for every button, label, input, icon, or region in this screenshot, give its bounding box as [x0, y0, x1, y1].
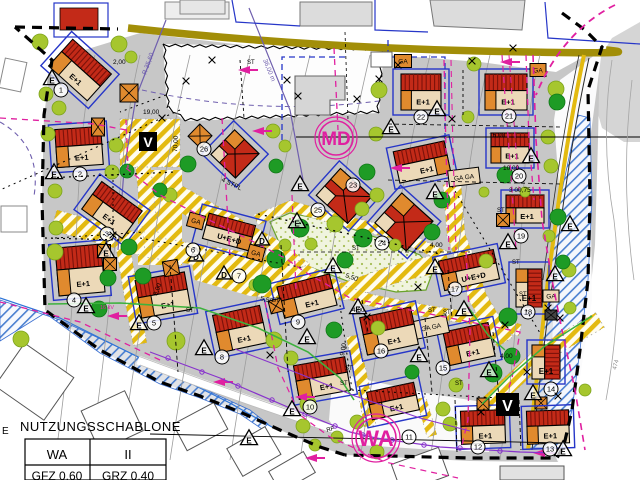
svg-text:26: 26	[200, 145, 208, 154]
svg-text:15: 15	[439, 364, 447, 373]
svg-text:21: 21	[505, 112, 513, 121]
svg-text:E: E	[294, 219, 300, 228]
svg-text:E+1: E+1	[543, 431, 557, 440]
svg-text:16,00: 16,00	[489, 132, 506, 139]
svg-text:D: D	[221, 271, 227, 280]
svg-text:ST: ST	[247, 60, 255, 66]
svg-text:E+1: E+1	[520, 212, 534, 221]
svg-text:9: 9	[296, 318, 300, 327]
svg-text:4,00: 4,00	[500, 353, 513, 360]
svg-text:MD: MD	[321, 129, 351, 150]
svg-text:ST: ST	[497, 208, 505, 214]
svg-text:E: E	[103, 249, 109, 258]
svg-text:E: E	[461, 307, 467, 316]
svg-text:E: E	[552, 272, 558, 281]
svg-text:14: 14	[547, 385, 555, 394]
svg-text:2,00: 2,00	[113, 59, 126, 66]
svg-text:ST: ST	[455, 381, 463, 387]
svg-text:D: D	[259, 237, 265, 246]
svg-text:V: V	[143, 134, 153, 150]
svg-text:GA: GA	[398, 59, 408, 66]
svg-text:ST: ST	[272, 298, 280, 304]
svg-text:GRZ 0,40: GRZ 0,40	[102, 469, 154, 480]
svg-text:22: 22	[417, 113, 425, 122]
svg-text:E: E	[201, 346, 207, 355]
svg-text:V: V	[502, 398, 513, 415]
svg-text:17: 17	[451, 285, 459, 294]
svg-text:18: 18	[524, 308, 532, 317]
svg-text:E: E	[486, 368, 492, 377]
svg-text:E: E	[505, 240, 511, 249]
svg-text:70,00: 70,00	[172, 135, 180, 152]
svg-text:13: 13	[546, 445, 554, 454]
svg-text:16 kV: 16 kV	[100, 305, 114, 311]
svg-text:E: E	[432, 190, 438, 199]
svg-text:E: E	[530, 391, 536, 400]
svg-text:E: E	[49, 76, 55, 85]
svg-text:E: E	[289, 407, 295, 416]
svg-text:7: 7	[237, 272, 241, 281]
svg-text:NUTZUNGSSCHABLONE: NUTZUNGSSCHABLONE	[20, 419, 181, 434]
svg-text:WA: WA	[47, 447, 68, 462]
svg-text:1: 1	[59, 86, 63, 95]
svg-text:E: E	[560, 447, 566, 456]
svg-text:20: 20	[515, 172, 523, 181]
svg-text:6: 6	[191, 246, 195, 255]
svg-text:E: E	[2, 426, 9, 437]
svg-text:E: E	[304, 335, 310, 344]
svg-text:E: E	[330, 264, 336, 273]
svg-text:10: 10	[306, 403, 314, 412]
svg-text:E: E	[388, 125, 394, 134]
svg-text:19,00: 19,00	[143, 109, 160, 116]
svg-text:4,00: 4,00	[430, 242, 443, 249]
svg-text:8: 8	[220, 353, 224, 362]
svg-text:ST: ST	[340, 381, 348, 387]
svg-text:ST: ST	[443, 310, 451, 316]
svg-text:WA: WA	[358, 426, 394, 451]
svg-text:3: 3	[105, 230, 109, 239]
svg-text:E+1: E+1	[539, 367, 554, 376]
svg-text:E: E	[297, 182, 303, 191]
svg-text:E: E	[434, 107, 440, 116]
svg-text:16: 16	[377, 347, 385, 356]
svg-text:ST: ST	[428, 308, 436, 314]
svg-text:E: E	[136, 321, 142, 330]
svg-text:2: 2	[78, 170, 82, 179]
svg-text:E: E	[528, 154, 534, 163]
svg-text:3 00,75: 3 00,75	[509, 187, 531, 194]
svg-text:E+1: E+1	[416, 98, 430, 107]
svg-text:11: 11	[405, 433, 413, 442]
svg-text:E: E	[432, 265, 438, 274]
svg-text:10,00: 10,00	[503, 165, 520, 172]
svg-text:4: 4	[72, 296, 76, 305]
svg-text:E: E	[246, 436, 252, 445]
svg-text:II: II	[124, 447, 131, 462]
svg-text:E+1: E+1	[75, 153, 89, 163]
svg-text:E+1: E+1	[76, 279, 90, 289]
svg-text:E: E	[416, 353, 422, 362]
svg-text:ST: ST	[519, 292, 527, 298]
svg-text:25: 25	[314, 206, 322, 215]
svg-text:ST: ST	[352, 246, 360, 252]
svg-text:E: E	[83, 304, 89, 313]
svg-text:GA: GA	[533, 68, 543, 75]
svg-text:23: 23	[349, 181, 357, 190]
svg-text:5: 5	[152, 319, 156, 328]
svg-text:ST: ST	[186, 308, 194, 314]
svg-text:GFZ 0,60: GFZ 0,60	[32, 469, 83, 480]
svg-text:E: E	[567, 222, 573, 231]
svg-text:ST: ST	[512, 260, 520, 266]
svg-text:E+1: E+1	[478, 431, 492, 440]
svg-text:24: 24	[378, 239, 386, 248]
svg-text:12: 12	[474, 443, 482, 452]
svg-text:19: 19	[517, 232, 525, 241]
